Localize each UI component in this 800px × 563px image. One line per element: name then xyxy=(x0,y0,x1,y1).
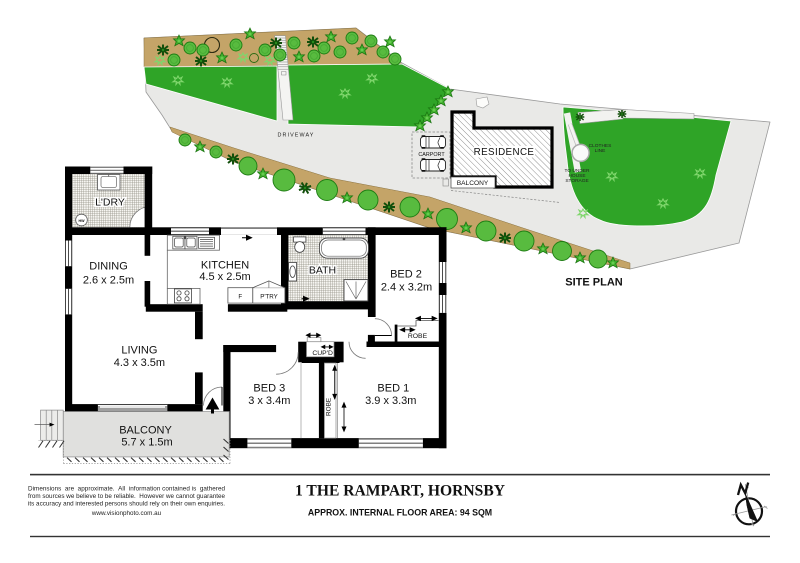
svg-text:F: F xyxy=(238,294,242,301)
svg-text:DINING: DINING xyxy=(89,261,128,273)
svg-text:L'DRY: L'DRY xyxy=(95,197,125,209)
svg-text:3 x 3.4m: 3 x 3.4m xyxy=(248,395,290,407)
svg-text:Dimensions are approximate.: Dimensions are approximate. All informat… xyxy=(28,486,225,493)
svg-text:SITE PLAN: SITE PLAN xyxy=(565,277,623,289)
svg-text:P'TRY: P'TRY xyxy=(260,294,278,301)
svg-text:2.6 x 2.5m: 2.6 x 2.5m xyxy=(83,274,134,286)
svg-text:4.5 x 2.5m: 4.5 x 2.5m xyxy=(199,271,250,283)
svg-text:HW: HW xyxy=(79,219,86,223)
svg-text:LINE: LINE xyxy=(595,148,606,154)
svg-text:from sources we believe to be: from sources we believe to be reliable. … xyxy=(28,493,225,500)
svg-text:LIVING: LIVING xyxy=(121,344,157,356)
svg-text:ROBE: ROBE xyxy=(326,398,333,416)
svg-text:2.4 x 3.2m: 2.4 x 3.2m xyxy=(381,281,432,293)
svg-text:BALCONY: BALCONY xyxy=(119,425,172,437)
svg-text:BED 2: BED 2 xyxy=(390,268,422,280)
svg-text:1 THE RAMPART, HORNSBY: 1 THE RAMPART, HORNSBY xyxy=(295,483,505,500)
svg-text:KITCHEN: KITCHEN xyxy=(201,259,249,271)
svg-text:DRIVEWAY: DRIVEWAY xyxy=(278,133,315,139)
svg-text:5.7 x 1.5m: 5.7 x 1.5m xyxy=(121,437,172,449)
svg-text:BED 1: BED 1 xyxy=(377,382,409,394)
svg-text:BATH: BATH xyxy=(309,265,336,277)
svg-text:RESIDENCE: RESIDENCE xyxy=(474,147,535,158)
svg-text:3.9 x 3.3m: 3.9 x 3.3m xyxy=(365,395,416,407)
svg-text:ROBE: ROBE xyxy=(408,333,428,340)
svg-text:4.3 x 3.5m: 4.3 x 3.5m xyxy=(114,357,165,369)
svg-text:www.visionphoto.com.au: www.visionphoto.com.au xyxy=(91,510,162,517)
svg-text:BALCONY: BALCONY xyxy=(457,180,489,187)
svg-text:APPROX. INTERNAL FLOOR AREA: 9: APPROX. INTERNAL FLOOR AREA: 94 SQM xyxy=(308,508,492,518)
svg-text:CARPORT: CARPORT xyxy=(418,152,445,158)
svg-text:BED 3: BED 3 xyxy=(253,382,285,394)
svg-text:STORAGE: STORAGE xyxy=(565,178,588,184)
svg-text:CUP'D: CUP'D xyxy=(312,350,333,357)
svg-text:its accuracy and interested pe: its accuracy and interested persons shou… xyxy=(28,501,225,508)
